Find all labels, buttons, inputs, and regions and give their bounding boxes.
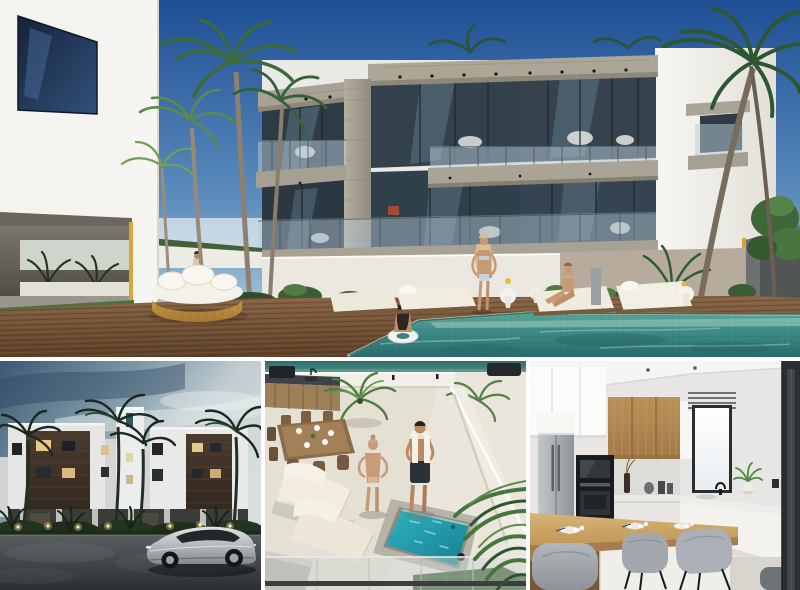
light-switch	[772, 479, 779, 488]
glass-balustrade	[265, 551, 526, 590]
property-render-collage	[0, 0, 800, 590]
tall-cabinets	[530, 367, 606, 438]
glass-door-frame	[782, 361, 800, 590]
window	[688, 389, 736, 500]
panel-main-exterior	[0, 0, 800, 357]
left-building	[0, 0, 158, 330]
panel-roof-terrace	[265, 361, 526, 590]
sea-beyond	[265, 361, 526, 372]
oven-microwave-stack	[576, 455, 614, 521]
fridge	[538, 433, 574, 521]
glass-railing-upper	[256, 140, 658, 188]
panel-kitchen-interior	[530, 361, 800, 590]
panel-street-exterior	[0, 361, 261, 590]
